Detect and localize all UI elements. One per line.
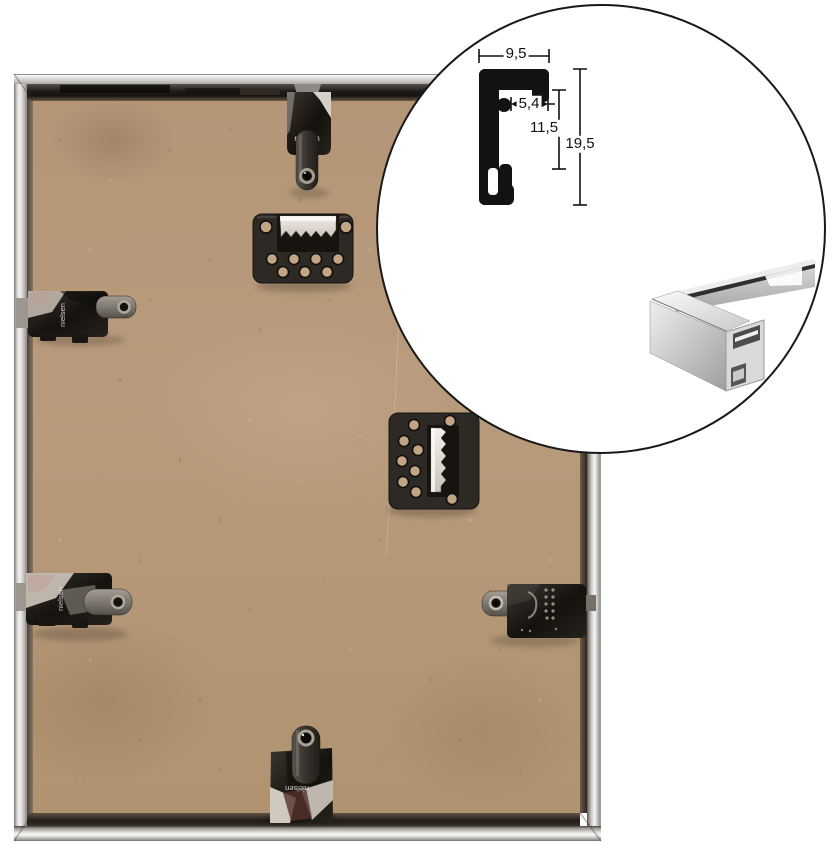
spring-clip-top: nielsen — [287, 84, 331, 198]
dimension-label-face-width: 9,5 — [504, 46, 529, 63]
hanger-plate-horizontal — [253, 214, 353, 292]
profile-cross-section — [479, 69, 549, 205]
spring-clip-left-lower: nielsen — [16, 573, 132, 641]
profile-corner-3d-render — [650, 259, 816, 391]
brand-text-bottom-clip: nielsen — [285, 784, 309, 793]
dimension-label-total-depth: 19,5 — [563, 136, 596, 153]
clip-hole — [299, 731, 313, 745]
brand-text-left-lower-clip: nielsen — [56, 587, 65, 611]
clip-hole — [112, 596, 124, 608]
spring-clip-bottom: nielsen — [262, 726, 338, 826]
profile-inset-circle: 9,5 5,4 11,5 19,5 — [376, 4, 826, 454]
brand-text-left-upper-clip: nielsen — [58, 303, 67, 327]
top-gap-marks — [60, 85, 280, 95]
dimension-label-rebate: 5,4 — [517, 96, 542, 113]
clip-hole — [119, 302, 130, 313]
dimension-label-inner-depth: 11,5 — [528, 120, 560, 137]
profile-diagram-svg — [378, 6, 826, 454]
spring-clip-left-upper: nielsen — [16, 291, 136, 346]
spring-clip-right — [482, 584, 596, 647]
frame-back-product-photo: nielsen — [0, 0, 832, 851]
